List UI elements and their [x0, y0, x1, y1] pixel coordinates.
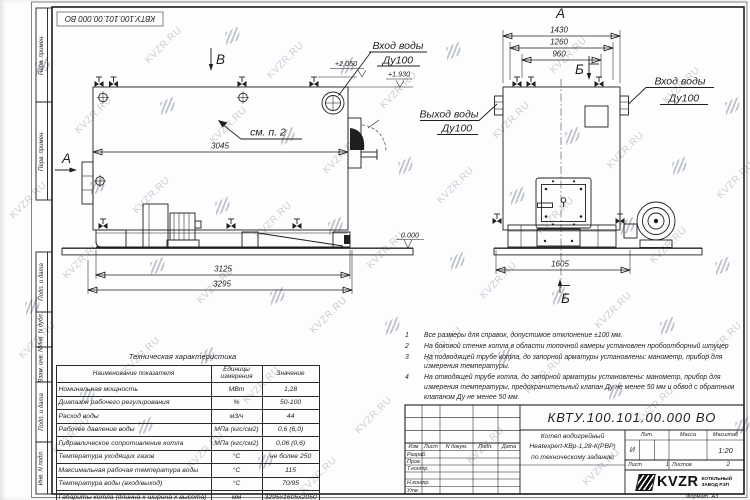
side-view: 3045 3125 3295 А В см. п. 2	[55, 40, 427, 294]
furnace-door	[536, 178, 591, 228]
kvzr-logo: KVZR КОТЕЛЬНЫЙ ЗАВОД РЭП	[625, 470, 744, 494]
inlet-water-dn-side: Ду100	[382, 55, 413, 67]
strip-cell-perv-primen-1: Перв. примен.	[36, 8, 48, 102]
strip-cell-podp-data-1: Подп. и дата	[36, 252, 48, 312]
table-row: Температура уходящих газов°Сне более 250	[56, 450, 319, 464]
outlet-water-label: Выход воды	[419, 109, 478, 121]
front-view: А	[419, 6, 714, 306]
side-fan-motor	[143, 204, 201, 247]
strip-cell-vzam-inv: Взам. инв. N	[36, 347, 48, 382]
flue-duct	[348, 118, 386, 168]
tb-col-ndokum: N докум.	[440, 443, 473, 451]
notes-list: 1Все размеры для справок, допустимое отк…	[405, 331, 742, 404]
inlet-water-label-side: Вход воды	[373, 40, 424, 52]
tb-row-razrab: Разраб.	[407, 452, 427, 458]
tb-mass-header: Масса	[669, 431, 707, 439]
view-label-a: А	[555, 6, 565, 21]
spec-header-value: Значение	[262, 366, 319, 383]
spec-table-title: Техническая характеристика	[55, 352, 310, 361]
view-label-b: В	[216, 52, 225, 67]
tb-col-data: Дата	[498, 443, 520, 451]
tb-col-izm: Изм	[405, 443, 422, 451]
spec-table: Наименование показателя Единицы измерени…	[56, 365, 320, 500]
tb-row-tkontr: Т.контр.	[407, 466, 429, 472]
elevation-mid: +1.930	[388, 70, 410, 79]
tb-sheet: Лист1	[628, 462, 669, 468]
table-row: Максимальная рабочая температура воды°С1…	[56, 464, 319, 478]
section-label-b-top: Б	[575, 62, 584, 77]
tb-scale-header: Масштаб	[707, 431, 744, 439]
elevation-zero: 0.000	[401, 231, 419, 240]
section-label-a: А	[61, 151, 71, 166]
tb-col-podp: Подп.	[473, 443, 498, 451]
strip-cell-inv-dubl: Инв. N дубл.	[36, 312, 48, 347]
kvzr-company-name: КОТЕЛЬНЫЙ ЗАВОД РЭП	[701, 476, 732, 488]
inlet-water-dn: Ду100	[668, 93, 699, 105]
tb-row-nkontr: Н.контр.	[407, 480, 430, 486]
spec-header-row: Наименование показателя Единицы измерени…	[56, 366, 319, 383]
strip-cell-inv-podl: Инв. N подл.	[36, 442, 48, 494]
dim-1260: 1260	[550, 38, 568, 47]
tb-row-prov: Пров.	[407, 459, 421, 465]
tb-lit-header: Лит.	[625, 431, 669, 439]
format-label: Формат А3	[686, 494, 718, 500]
note-item: 2На боковой стенке котла в области топоч…	[405, 342, 742, 352]
dim-1605: 1605	[551, 260, 569, 269]
elevation-high: +2.050	[335, 59, 357, 68]
dim-1430: 1430	[550, 26, 568, 35]
product-name: Котел водогрейный Heatexpert-КВр-1,28-К(…	[521, 430, 624, 465]
table-row: Габариты котла (длинна х ширина х высота…	[56, 491, 319, 500]
inlet-water-label: Вход воды	[655, 76, 706, 88]
dim-960: 960	[552, 50, 566, 59]
note-item: 3На подводящей трубе котла, до запорной …	[405, 353, 742, 373]
table-row: Температура воды (вход/выход)°С70/95	[56, 477, 319, 491]
tb-sheets: Листов2	[672, 462, 730, 468]
front-fan	[624, 202, 675, 248]
front-dimensions: 1430 1260 960 1605	[496, 26, 630, 275]
top-stamp: КВТУ.100.101.00.000 ВО	[57, 12, 163, 26]
spec-header-name: Наименование показателя	[56, 366, 211, 383]
tb-scale-value: 1:20	[707, 440, 744, 460]
doc-number: КВТУ.100.101.00.000 ВО	[520, 405, 744, 430]
table-row: Гидравлическое сопротивление котлаМПа (к…	[56, 437, 319, 451]
tb-lit-value: И	[625, 440, 640, 460]
kvzr-logo-icon	[635, 474, 656, 491]
table-row: Номинальная мощностьМВт1,28	[56, 383, 319, 397]
spec-header-unit: Единицы измерения	[211, 366, 262, 383]
drawing-sheet: KVZR.RUKVZR.RUKVZR.RUKVZR.RUKVZR.RUKVZR.…	[0, 0, 750, 500]
see-note-label: см. п. 2	[250, 127, 286, 139]
side-dimensions: 3045 3125 3295	[88, 142, 352, 295]
table-row: Диапазон рабочего регулирования%50-100	[56, 396, 319, 410]
kvzr-logo-text: KVZR	[657, 474, 698, 490]
dim-3295: 3295	[213, 280, 231, 289]
tb-row-utv: Утв.	[407, 488, 419, 494]
strip-cell-podp-data-2: Подп. и дата	[36, 382, 48, 442]
dim-3045: 3045	[211, 142, 229, 151]
table-row: Рабочее давление водыМПа (кгс/см2)0,6 (6…	[56, 423, 319, 437]
inlet-flange	[322, 92, 344, 114]
strip-cell-perv-primen-2: Перв. примен.	[36, 102, 48, 200]
outlet-water-dn: Ду100	[441, 123, 472, 135]
table-row: Расход водым3/ч44	[56, 410, 319, 424]
dim-3125: 3125	[214, 265, 232, 274]
note-item: 1Все размеры для справок, допустимое отк…	[405, 331, 742, 341]
section-label-b-bottom: Б	[561, 291, 570, 306]
side-skid	[96, 230, 350, 247]
tb-col-list: Лист	[422, 443, 440, 451]
note-item: 4На отводящей трубе котла, до запорной а…	[405, 373, 742, 402]
